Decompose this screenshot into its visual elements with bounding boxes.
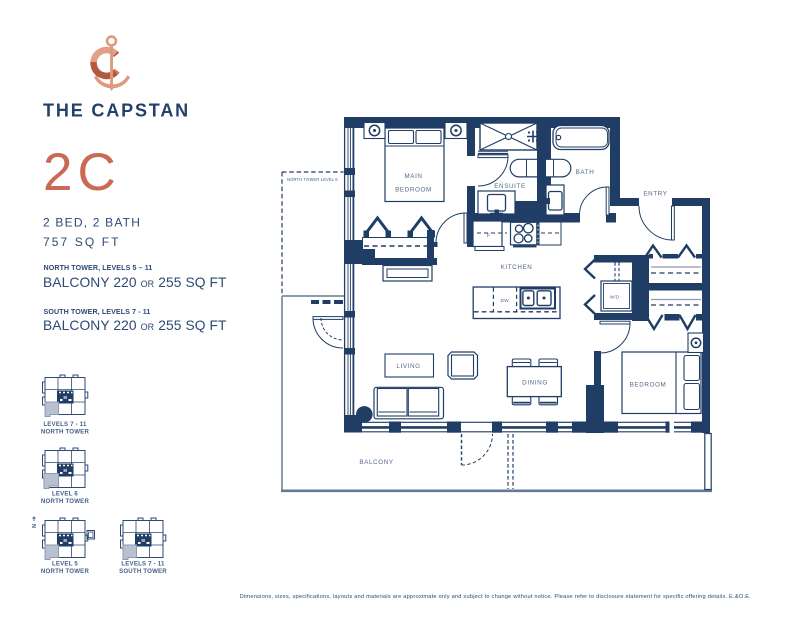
svg-text:LEVELS 7 - 11: LEVELS 7 - 11 — [121, 561, 165, 568]
svg-text:LEVELS 7 - 11: LEVELS 7 - 11 — [43, 421, 87, 428]
svg-text:N: N — [32, 524, 38, 528]
svg-text:SOUTH TOWER, LEVELS 7 - 11: SOUTH TOWER, LEVELS 7 - 11 — [44, 308, 151, 316]
svg-text:NORTH TOWER, LEVELS 5 – 11: NORTH TOWER, LEVELS 5 – 11 — [44, 264, 153, 272]
svg-text:NORTH TOWER: NORTH TOWER — [41, 568, 90, 575]
svg-text:2 BED, 2 BATH: 2 BED, 2 BATH — [43, 216, 141, 230]
svg-text:SOUTH TOWER: SOUTH TOWER — [119, 568, 167, 575]
svg-text:NORTH TOWER: NORTH TOWER — [41, 498, 90, 505]
svg-text:ENTRY: ENTRY — [643, 191, 667, 198]
svg-text:BALCONY: BALCONY — [359, 459, 393, 466]
svg-text:BALCONY 220 OR 255 SQ FT: BALCONY 220 OR 255 SQ FT — [43, 275, 227, 290]
svg-text:LEVEL 5: LEVEL 5 — [52, 561, 78, 568]
svg-text:KITCHEN: KITCHEN — [501, 264, 533, 271]
svg-text:BEDROOM: BEDROOM — [630, 382, 667, 389]
svg-text:NORTH TOWER: NORTH TOWER — [41, 429, 90, 436]
svg-text:2C: 2C — [43, 143, 121, 202]
svg-text:LEVEL 6: LEVEL 6 — [52, 491, 78, 498]
svg-text:BATH: BATH — [576, 169, 595, 176]
svg-text:DW: DW — [501, 298, 510, 303]
svg-text:W/D: W/D — [610, 295, 619, 300]
svg-text:757 SQ FT: 757 SQ FT — [43, 235, 121, 249]
svg-text:BALCONY 220 OR 255 SQ FT: BALCONY 220 OR 255 SQ FT — [43, 318, 227, 333]
svg-text:Dimensions, sizes, specificati: Dimensions, sizes, specifications, layou… — [240, 594, 752, 600]
svg-text:LIVING: LIVING — [396, 363, 420, 370]
svg-text:NORTH TOWER LEVEL 6: NORTH TOWER LEVEL 6 — [287, 177, 338, 182]
svg-text:THE CAPSTAN: THE CAPSTAN — [43, 101, 190, 121]
svg-text:ENSUITE: ENSUITE — [494, 183, 526, 190]
svg-text:F: F — [487, 233, 491, 239]
svg-text:MAIN: MAIN — [404, 173, 422, 180]
svg-text:BEDROOM: BEDROOM — [395, 187, 432, 194]
svg-text:DINING: DINING — [522, 379, 548, 386]
